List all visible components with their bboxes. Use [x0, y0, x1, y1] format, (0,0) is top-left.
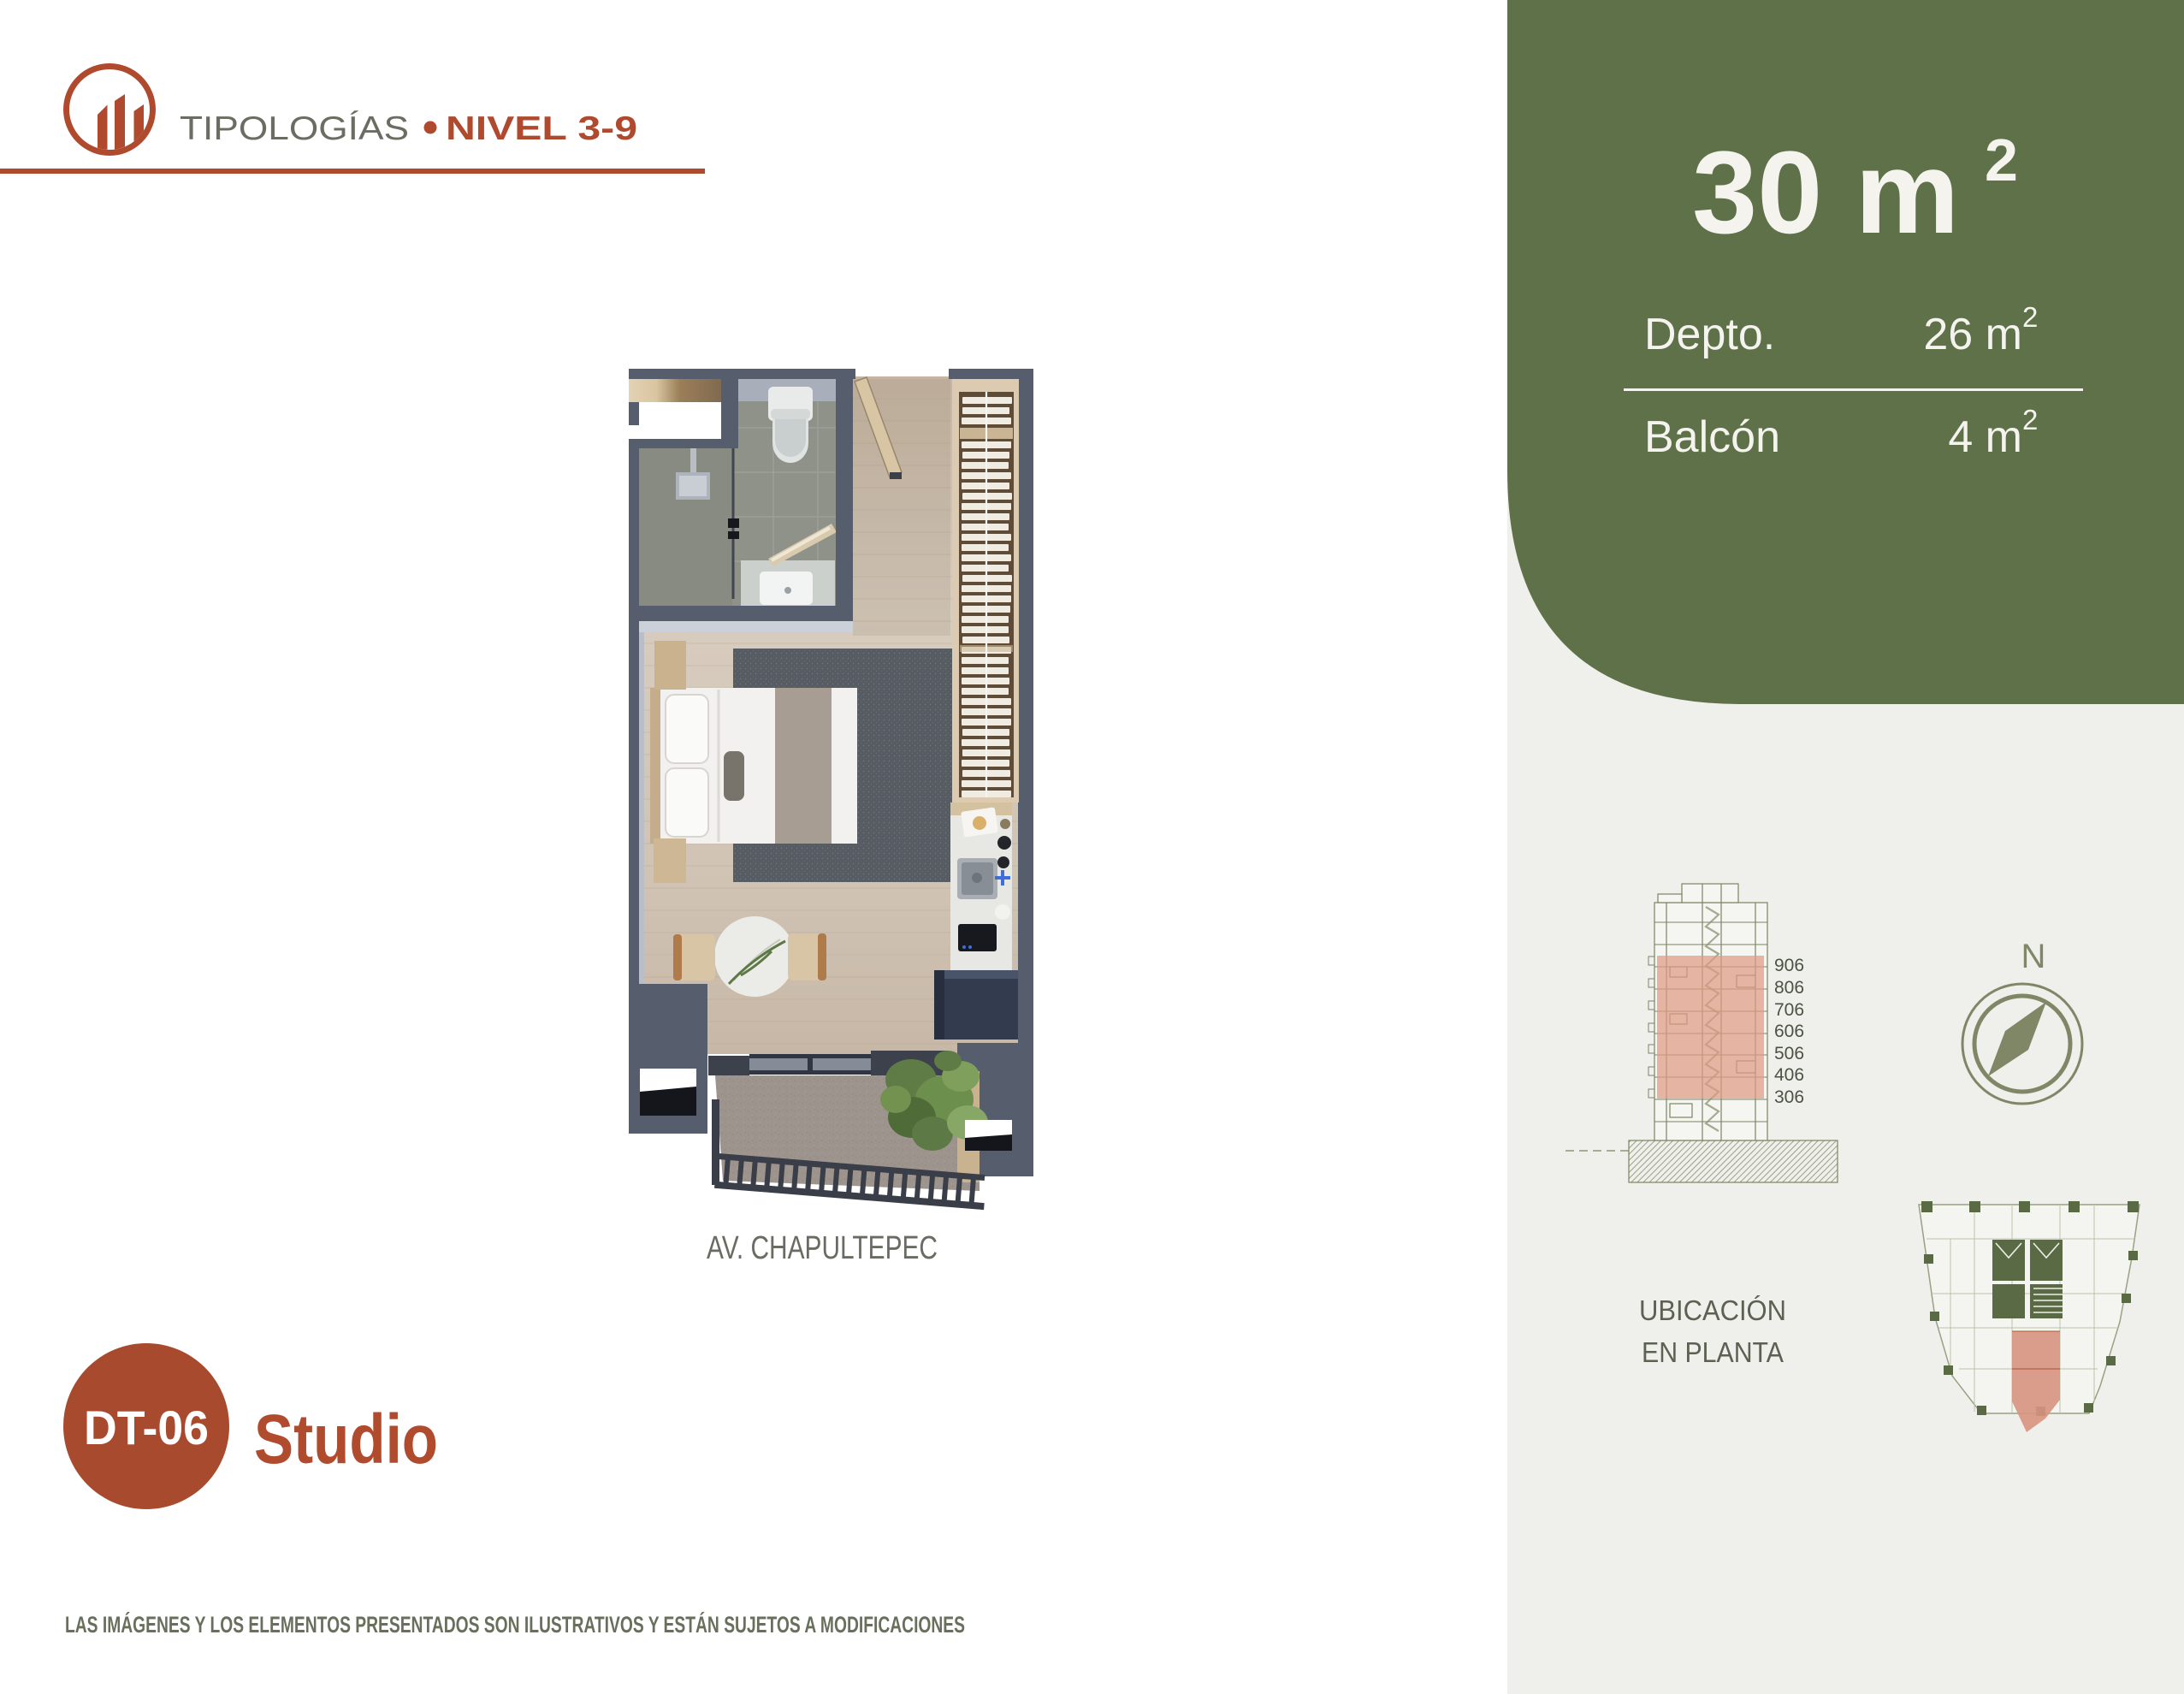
svg-text:806: 806: [1774, 978, 1804, 998]
svg-text:706: 706: [1774, 1000, 1804, 1020]
svg-text:506: 506: [1774, 1044, 1804, 1063]
svg-text:406: 406: [1774, 1065, 1804, 1085]
svg-text:LAS IMÁGENES Y LOS ELEMENTOS P: LAS IMÁGENES Y LOS ELEMENTOS PRESENTADOS…: [65, 1611, 965, 1638]
svg-text:906: 906: [1774, 956, 1804, 975]
svg-text:2: 2: [2022, 301, 2038, 333]
svg-text:606: 606: [1774, 1022, 1804, 1041]
svg-text:306: 306: [1774, 1087, 1804, 1107]
svg-text:26 m: 26 m: [1923, 310, 2022, 359]
svg-text:TIPOLOGÍAS: TIPOLOGÍAS: [180, 110, 409, 147]
svg-text:Balcón: Balcón: [1644, 412, 1780, 462]
svg-text:DT-06: DT-06: [84, 1401, 209, 1454]
svg-text:2: 2: [2022, 404, 2038, 435]
svg-text:AV. CHAPULTEPEC: AV. CHAPULTEPEC: [707, 1230, 938, 1266]
svg-text:NIVEL 3-9: NIVEL 3-9: [446, 110, 637, 147]
svg-text:UBICACIÓN: UBICACIÓN: [1639, 1294, 1786, 1326]
svg-text:2: 2: [1985, 127, 2018, 193]
svg-text:30 m: 30 m: [1692, 127, 1959, 258]
svg-text:4 m: 4 m: [1948, 412, 2022, 462]
svg-text:Studio: Studio: [254, 1401, 438, 1478]
svg-text:EN PLANTA: EN PLANTA: [1642, 1336, 1784, 1368]
svg-text:Depto.: Depto.: [1644, 310, 1775, 359]
svg-text:N: N: [2021, 938, 2046, 975]
